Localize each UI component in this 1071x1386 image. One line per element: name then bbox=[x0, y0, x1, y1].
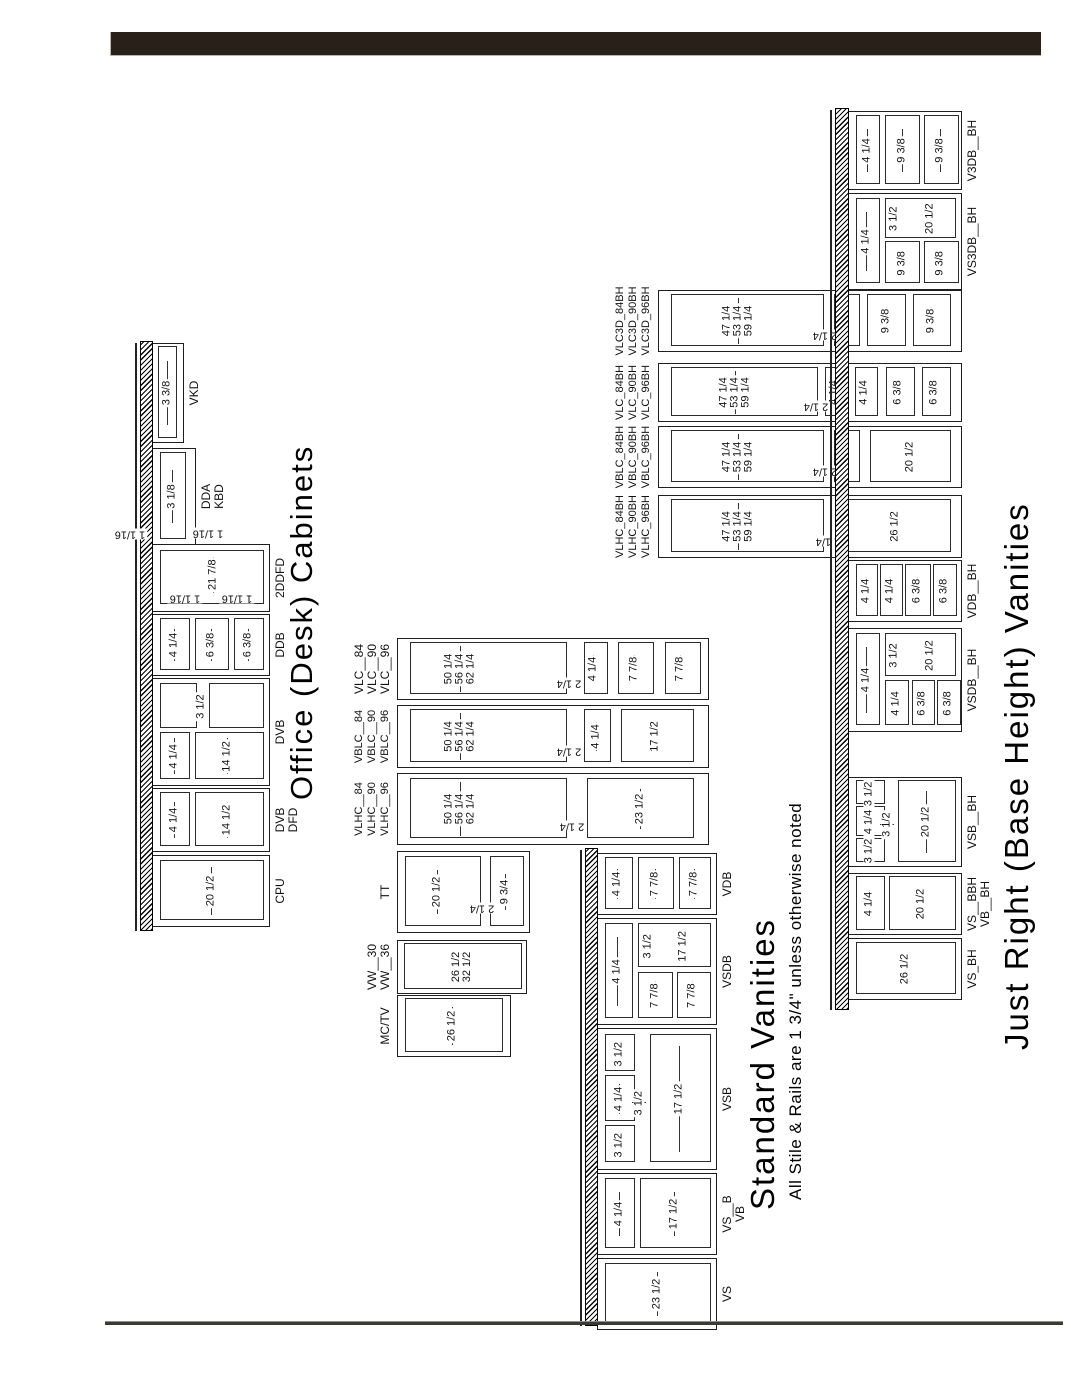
dimension-label: 50 1/456 1/462 1/4 bbox=[444, 792, 477, 827]
opening bbox=[410, 709, 567, 762]
cabinet-vs-bbh-drawing: 4 1/420 1/2VS__BBHVB__BH bbox=[848, 873, 962, 935]
cabinet-vdb-bh-drawing: 4 1/44 1/46 3/86 3/8VDB__BH bbox=[848, 560, 962, 622]
dimension-label: 7 7/8 bbox=[675, 655, 686, 683]
dimension-label: 9 3/8 bbox=[896, 136, 907, 164]
dimension-label: 17 1/2 bbox=[668, 1197, 679, 1232]
dimension-label: 9 3/8 bbox=[925, 307, 936, 335]
dimension-label: 4 1/4 bbox=[168, 742, 179, 770]
cabinet-2ddfd-drawing: 21 7/81 1/161 1/162DDFD bbox=[152, 544, 270, 612]
cabinet-label: VLHC__84VLHC__90VLHC__96 bbox=[353, 782, 392, 836]
dimension-label: 3 3/8 bbox=[161, 379, 172, 407]
cabinet-label: VS__BBHVB__BH bbox=[966, 877, 992, 931]
dimension-label: 47 1/453 1/459 1/4 bbox=[721, 440, 754, 475]
cabinet-label: VS_BH bbox=[966, 949, 979, 988]
dimension-label: 17 1/2 bbox=[677, 929, 688, 964]
dimension-label: 6 3/8 bbox=[206, 631, 217, 659]
dimension-label: 47 1/453 1/459 1/4 bbox=[718, 375, 751, 410]
dimension-label: 6 3/8 bbox=[916, 689, 927, 717]
cabinet-label: VW__30VW__36 bbox=[366, 944, 392, 990]
cabinet-dvb-dfd-drawing: 4 1/414 1/2DVBDFD bbox=[152, 788, 270, 852]
cabinet-label: VBLC__84VBLC__90VBLC__96 bbox=[353, 710, 392, 763]
dimension-label: 6 3/8 bbox=[892, 378, 903, 406]
dimension-label: 2 1/4 bbox=[802, 401, 830, 412]
dimension-label: 6 3/8 bbox=[912, 577, 923, 605]
cabinet-label: 2DDFD bbox=[274, 558, 287, 598]
dimension-label: 4 1/4 bbox=[860, 577, 871, 605]
dimension-label: 17 1/2 bbox=[674, 1082, 685, 1117]
cabinet-vs-b-drawing: 4 1/417 1/2VS__BVB bbox=[597, 1173, 717, 1255]
dimension-label: 7 7/8 bbox=[649, 981, 660, 1009]
dimension-label: 20 1/2 bbox=[921, 805, 932, 840]
dimension-label: 9 3/4 bbox=[500, 878, 511, 906]
cabinet-label: VSDB bbox=[721, 955, 734, 988]
dimension-label: 4 1/4 bbox=[168, 631, 179, 659]
dimension-label: 3 1/2 bbox=[888, 641, 899, 669]
dimension-label: 7 7/8 bbox=[628, 655, 639, 683]
cabinet-vlc-bh-drawing: 47 1/453 1/459 1/42 1/44 1/44 1/46 3/86 … bbox=[658, 363, 962, 422]
dimension-label: 9 3/8 bbox=[896, 249, 907, 277]
cabinet-label: DVB bbox=[274, 720, 287, 745]
cabinet-label: VS bbox=[721, 1286, 734, 1302]
spec-sheet-page: Office (Desk) Cabinets Standard Vanities… bbox=[0, 0, 1071, 1386]
cabinet-vs3db-bh-drawing: 4 1/49 3/89 3/83 1/220 1/2VS3DB__BH bbox=[848, 193, 962, 290]
cabinet-vs-drawing: 23 1/2VS bbox=[597, 1258, 717, 1330]
cabinet-label: V3DB__BH bbox=[966, 120, 979, 181]
dimension-label: 20 1/2 bbox=[206, 874, 217, 909]
countertop-edge-line bbox=[135, 343, 137, 931]
cabinet-v3db-bh-drawing: 4 1/49 3/89 3/8V3DB__BH bbox=[848, 111, 962, 190]
cabinet-cpu-drawing: 20 1/2CPU bbox=[152, 855, 270, 927]
dimension-label: 4 1/4 bbox=[861, 136, 872, 164]
dimension-label: 4 1/4 bbox=[860, 227, 871, 255]
cabinet-label: VSB bbox=[721, 1087, 734, 1111]
office-section-title: Office (Desk) Cabinets bbox=[284, 445, 320, 800]
dimension-label: 47 1/453 1/459 1/4 bbox=[721, 509, 754, 544]
cabinet-vsdb-bh-drawing: 4 1/44 1/46 3/86 3/83 1/220 1/2VSDB__BH bbox=[848, 628, 962, 732]
dimension-label: 6 3/8 bbox=[928, 378, 939, 406]
dimension-label: 3 1/2 bbox=[864, 780, 875, 808]
dimension-label: 3 1/2 bbox=[882, 810, 893, 838]
dimension-label: 3 1/2 bbox=[614, 1040, 625, 1068]
dimension-label: 26 1/2 bbox=[446, 1009, 457, 1044]
dimension-label: 20 1/2 bbox=[915, 887, 926, 922]
dimension-label: 7 7/8 bbox=[688, 870, 699, 898]
countertop-hatch bbox=[835, 108, 849, 1010]
dimension-label: 1 1/16 bbox=[219, 592, 254, 603]
dimension-label: 20 1/2 bbox=[924, 638, 935, 673]
dimension-label: 2 1/4 bbox=[468, 903, 496, 914]
dimension-label: 9 3/8 bbox=[934, 136, 945, 164]
dimension-label: 3 1/2 bbox=[888, 204, 899, 232]
cabinet-label: VDB__BH bbox=[966, 564, 979, 619]
opening bbox=[405, 856, 482, 927]
dimension-label: 7 7/8 bbox=[649, 870, 660, 898]
cabinet-label: VLC_84BHVLC_90BHVLC_96BH bbox=[614, 365, 653, 420]
cabinet-vkd-drawing: 3 3/8VKD bbox=[152, 343, 184, 443]
cabinet-label: VLC3D_84BHVLC3D_90BHVLC3D_96BH bbox=[614, 286, 653, 355]
cabinet-vsb-bh-drawing: 3 1/24 1/43 1/23 1/220 1/2VSB__BH bbox=[848, 777, 962, 867]
opening bbox=[160, 683, 197, 727]
opening bbox=[410, 778, 567, 839]
dimension-label: 4 1/4 bbox=[859, 378, 870, 406]
footer-rule bbox=[105, 1321, 1063, 1325]
opening bbox=[209, 683, 264, 727]
cabinet-mc-tv-drawing: 26 1/2MC/TV bbox=[397, 995, 511, 1057]
dimension-label: 6 3/8 bbox=[939, 577, 950, 605]
cabinet-label: VSB__BH bbox=[966, 795, 979, 849]
dimension-label: 23 1/2 bbox=[634, 792, 645, 827]
cabinet-tt-drawing: 20 1/22 1/49 3/4TT bbox=[397, 851, 530, 933]
dimension-label: 20 1/2 bbox=[924, 201, 935, 236]
dimension-label: 3 1/2 bbox=[642, 932, 653, 960]
dimension-label: 20 1/2 bbox=[432, 875, 443, 910]
dimension-label: 4 1/4 bbox=[614, 1085, 625, 1113]
cabinet-label: VLHC_84BHVLHC_90BHVLHC_96BH bbox=[614, 495, 653, 558]
dimension-label: 2 1/4 bbox=[554, 746, 582, 757]
dimension-label: 1 1/16 bbox=[168, 592, 203, 603]
rotated-drawing-area: Office (Desk) Cabinets Standard Vanities… bbox=[0, 0, 1071, 1386]
dimension-label: 4 1/4 bbox=[614, 1200, 625, 1228]
dimension-label: 26 1/2 bbox=[889, 509, 900, 544]
dimension-label: 4 1/4 bbox=[885, 577, 896, 605]
cabinet-vlc3d-bh-drawing: 47 1/453 1/459 1/42 1/44 1/49 3/89 3/8VL… bbox=[658, 290, 962, 352]
cabinet-dvb-drawing: 4 1/414 1/23 1/2DVB bbox=[152, 678, 270, 786]
dimension-label: 4 1/4 bbox=[891, 689, 902, 717]
dimension-label: 3 1/2 bbox=[634, 1089, 645, 1117]
cabinet-vw-drawing: 26 1/232 1/2VW__30VW__36 bbox=[397, 940, 527, 994]
dimension-label: 21 7/8 bbox=[208, 557, 219, 592]
dimension-label: 2 1/4 bbox=[557, 820, 585, 831]
cabinet-vsb-drawing: 3 1/24 1/43 1/23 1/217 1/2VSB bbox=[597, 1028, 717, 1170]
cabinet-label: DDAKBD bbox=[200, 484, 226, 509]
cabinet-label: DDB bbox=[274, 632, 287, 657]
cabinet-label: VSDB__BH bbox=[966, 649, 979, 712]
dimension-label: 3 1/2 bbox=[864, 837, 875, 865]
dimension-label: 4 1/4 bbox=[864, 808, 875, 836]
dimension-label: 4 1/4 bbox=[611, 870, 622, 898]
dimension-label: 17 1/2 bbox=[650, 719, 661, 754]
dimension-label: 1 1/16 bbox=[113, 529, 148, 540]
cabinet-label: VLC__84VLC__90VLC__96 bbox=[353, 644, 392, 694]
cabinet-label: MC/TV bbox=[379, 1007, 392, 1044]
standard-section-subtitle: All Stile & Rails are 1 3/4" unless othe… bbox=[786, 803, 806, 1200]
cabinet-label: VKD bbox=[188, 381, 201, 406]
dimension-label: 4 1/4 bbox=[168, 806, 179, 834]
dimension-label: 47 1/453 1/459 1/4 bbox=[721, 304, 754, 339]
dimension-label: 2 1/4 bbox=[554, 678, 582, 689]
cabinet-vlc-drawing: 50 1/456 1/462 1/42 1/44 1/47 7/87 7/8VL… bbox=[397, 638, 709, 700]
dimension-label: 14 1/2 bbox=[222, 803, 233, 838]
cabinet-label: VS__BVB bbox=[721, 1195, 747, 1232]
dimension-label: 7 7/8 bbox=[687, 981, 698, 1009]
dimension-label: 50 1/456 1/462 1/4 bbox=[444, 652, 477, 687]
dimension-label: 26 1/232 1/2 bbox=[451, 950, 473, 985]
dimension-label: 3 1/2 bbox=[614, 1131, 625, 1159]
standard-section-title: Standard Vanities bbox=[744, 918, 782, 1210]
dimension-label: 14 1/2 bbox=[222, 739, 233, 774]
dimension-label: 4 1/4 bbox=[864, 890, 875, 918]
cabinet-label: CPU bbox=[274, 878, 287, 903]
cabinet-label: VBLC_84BHVBLC_90BHVBLC_96BH bbox=[614, 426, 653, 488]
dimension-label: 1 1/16 bbox=[191, 527, 226, 538]
cabinet-label: VS3DB__BH bbox=[966, 207, 979, 276]
dimension-label: 20 1/2 bbox=[904, 440, 915, 475]
cabinet-label: VDB bbox=[721, 872, 734, 897]
countertop-edge-line bbox=[580, 850, 582, 1326]
cabinet-label: TT bbox=[379, 885, 392, 900]
opening bbox=[410, 642, 567, 694]
cabinet-ddb-drawing: 4 1/46 3/86 3/8DDB bbox=[152, 614, 270, 676]
dimension-label: 6 3/8 bbox=[243, 631, 254, 659]
dimension-label: 50 1/456 1/462 1/4 bbox=[444, 719, 477, 754]
cabinet-vdb-drawing: 4 1/47 7/87 7/8VDB bbox=[597, 853, 717, 915]
dimension-label: 3 1/2 bbox=[195, 692, 206, 720]
countertop-hatch bbox=[140, 341, 153, 931]
dimension-label: 4 1/4 bbox=[588, 655, 599, 683]
dimension-label: 4 1/4 bbox=[591, 722, 602, 750]
cabinet-vblc-bh-drawing: 47 1/453 1/459 1/42 1/44 1/420 1/2VBLC_8… bbox=[658, 426, 962, 488]
cabinet-vs-bh-drawing: 26 1/2VS_BH bbox=[848, 938, 962, 1000]
cabinet-vsdb-drawing: 4 1/47 7/87 7/83 1/217 1/2VSDB bbox=[597, 918, 717, 1025]
dimension-label: 3 1/8 bbox=[166, 482, 177, 510]
countertop-hatch bbox=[585, 848, 598, 1326]
dimension-label: 4 1/4 bbox=[611, 957, 622, 985]
cabinet-dda-kbd-drawing: 3 1/81 1/16DDAKBD bbox=[152, 448, 196, 545]
cabinet-vlhc-bh-drawing: 47 1/453 1/459 1/42 1/426 1/2VLHC_84BHVL… bbox=[658, 495, 962, 558]
cabinet-label: DVBDFD bbox=[274, 808, 300, 833]
dimension-label: 6 3/8 bbox=[942, 689, 953, 717]
dimension-label: 4 1/4 bbox=[860, 666, 871, 694]
dimension-label: 9 3/8 bbox=[934, 249, 945, 277]
dimension-label: 9 3/8 bbox=[880, 307, 891, 335]
dimension-label: 23 1/2 bbox=[652, 1277, 663, 1312]
countertop-edge-line bbox=[830, 110, 832, 1010]
cabinet-vblc-drawing: 50 1/456 1/462 1/42 1/44 1/417 1/2VBLC__… bbox=[397, 705, 709, 768]
dimension-label: 26 1/2 bbox=[900, 952, 911, 987]
cabinet-vlhc-drawing: 50 1/456 1/462 1/42 1/423 1/2VLHC__84VLH… bbox=[397, 773, 709, 845]
just-right-section-title: Just Right (Base Height) Vanities bbox=[998, 502, 1036, 1050]
